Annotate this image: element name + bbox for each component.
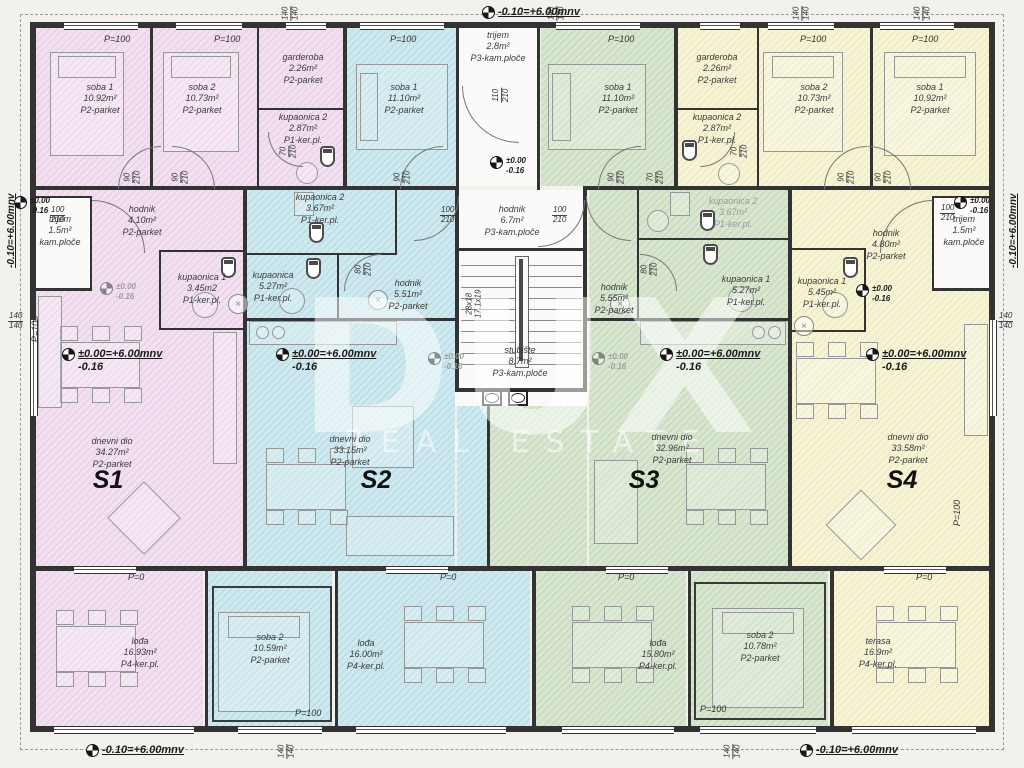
room-label-s4-kupaonica2: kupaonica 22.87m²P1-ker.pl.	[693, 112, 742, 146]
room-label-s3-lodja: lođa15.80m²P4-ker.pl.	[639, 638, 677, 672]
chair-symbol	[860, 404, 878, 419]
room-label-s4-soba1: soba 110.92m²P2-parket	[910, 82, 949, 116]
cabinet-symbol	[213, 332, 237, 464]
level-marker-s1-entry: ±0.00-0.16	[14, 196, 50, 215]
window	[176, 22, 242, 30]
wall	[159, 250, 161, 330]
window	[556, 22, 640, 30]
toilet-symbol	[320, 146, 335, 167]
chair-symbol	[298, 448, 316, 463]
chair-symbol	[796, 342, 814, 357]
column-symbol	[508, 390, 528, 406]
wall	[30, 22, 995, 28]
wall	[830, 570, 834, 726]
wall	[30, 566, 995, 571]
room-label-s4-dnevni: dnevni dio33.58m²P2-parket	[887, 432, 928, 466]
chair-symbol	[718, 448, 736, 463]
level-marker-bottom-left: -0.10=+6.00mnv	[86, 744, 184, 757]
apartment-label-s3: S3	[629, 466, 660, 495]
dim-80-210: 80210	[640, 263, 659, 276]
column-symbol	[482, 390, 502, 406]
sink-symbol	[718, 163, 740, 185]
room-label-s2-soba1: soba 111.10m²P2-parket	[384, 82, 423, 116]
wall	[487, 392, 490, 570]
chair-symbol	[60, 326, 78, 341]
chair-symbol	[120, 610, 138, 625]
room-label-s1-kupaonica2: kupaonica 22.87m²P1-ker.pl.	[279, 112, 328, 146]
wall	[757, 28, 759, 188]
window	[54, 726, 194, 734]
dim-90-210: 90210	[171, 171, 190, 184]
window	[852, 726, 976, 734]
room-label-s2-kupaonica2: kupaonica 23.67m²P1-ker.pl.	[296, 192, 345, 226]
window	[700, 726, 816, 734]
balcony-door	[386, 566, 448, 574]
toilet-symbol	[306, 258, 321, 279]
dim-70-210: 70210	[279, 145, 298, 158]
parapet-label: P=100	[952, 500, 962, 526]
chair-symbol	[124, 326, 142, 341]
kitchen-counter	[38, 296, 62, 408]
wall	[455, 248, 587, 251]
wall	[337, 255, 339, 318]
apartment-label-s4: S4	[887, 466, 918, 495]
wall	[532, 570, 536, 726]
chair-symbol	[572, 668, 590, 683]
parapet-label: P=100	[104, 34, 130, 44]
room-label-s1-soba1: soba 110.92m²P2-parket	[80, 82, 119, 116]
room-label-s1-garderoba: garderoba2.26m²P2-parket	[282, 52, 323, 86]
parapet-label: P=100	[700, 704, 726, 714]
sink-symbol	[647, 210, 669, 232]
wall	[30, 288, 92, 291]
room-label-s1-lodja: lođa16.93m²P4-ker.pl.	[121, 636, 159, 670]
wall	[676, 108, 757, 110]
toilet-symbol	[843, 257, 858, 278]
level-marker-faint: ±0.00-0.16	[100, 282, 136, 301]
room-label-s2-hodnik: hodnik5.51m²P2-parket	[388, 278, 427, 312]
hob-symbol	[768, 326, 781, 339]
dim-110-210: 110210	[492, 88, 511, 103]
chair-symbol	[124, 388, 142, 403]
fan-symbol: ×	[228, 294, 248, 314]
chair-symbol	[266, 510, 284, 525]
level-marker-s3-living: ±0.00=+6.00mnv-0.16	[660, 348, 760, 374]
parapet-label: P=100	[800, 34, 826, 44]
wall	[243, 186, 247, 570]
level-marker-s2-living: ±0.00=+6.00mnv-0.16	[276, 348, 376, 374]
room-fill-s3-ext	[490, 392, 587, 566]
dim-90-210: 90210	[123, 171, 142, 184]
chair-symbol	[940, 606, 958, 621]
chair-symbol	[468, 606, 486, 621]
wall	[456, 22, 459, 190]
window	[880, 22, 954, 30]
room-label-s1-dnevni: dnevni dio34.27m²P2-parket	[91, 436, 132, 470]
room-label-common-stubiste: stubište8.7m²P3-kam.ploče	[492, 345, 547, 379]
chair-symbol	[940, 668, 958, 683]
balcony-door	[74, 566, 136, 574]
parapet-label: P=100	[912, 34, 938, 44]
toilet-symbol	[703, 244, 718, 265]
chair-symbol	[828, 404, 846, 419]
apartment-label-s2: S2	[361, 466, 392, 495]
wall	[537, 22, 540, 190]
sofa-symbol	[346, 516, 454, 556]
dim-90-210: 90210	[874, 171, 893, 184]
chair-symbol	[56, 610, 74, 625]
dim-90-210: 90210	[607, 171, 626, 184]
hob-symbol	[256, 326, 269, 339]
level-marker-faint: ±0.00-0.16	[428, 352, 464, 371]
window	[360, 22, 444, 30]
wall	[637, 190, 639, 318]
chair-symbol	[92, 388, 110, 403]
room-label-s3-dnevni: dnevni dio32.96m²P2-parket	[651, 432, 692, 466]
window	[356, 726, 506, 734]
level-marker-top: -0.10=+6.00mnv	[482, 6, 580, 19]
room-label-s2-lodja: lođa16.00m²P4-ker.pl.	[347, 638, 385, 672]
room-label-common-hodnik: hodnik6.7m²P3-kam.ploče	[484, 204, 539, 238]
level-marker-common: ±0.00-0.16	[490, 156, 526, 175]
wall	[674, 22, 678, 188]
window	[286, 22, 326, 30]
dim-80-210: 80210	[354, 263, 373, 276]
room-label-s4-terasa: terasa16.9m²P4-ker.pl.	[859, 636, 897, 670]
room-label-s3-hodnik: hodnik5.55m²P2-parket	[594, 282, 633, 316]
chair-symbol	[604, 606, 622, 621]
room-label-s4-hodnik: hodnik4.80m²P2-parket	[866, 228, 905, 262]
level-marker-s4-hodnik: ±0.00-0.16	[856, 284, 892, 303]
chair-symbol	[436, 606, 454, 621]
chair-symbol	[404, 606, 422, 621]
dim-140-140: 140140	[8, 312, 23, 331]
room-label-s4-kupaonica1: kupaonica 15.45m²P1-ker.pl.	[798, 276, 847, 310]
dim-90-210: 90210	[393, 171, 412, 184]
room-label-s3-kupaonica2: kupaonica 23.67m²P1-ker.pl.	[709, 196, 758, 230]
balcony-door	[606, 566, 668, 574]
wall	[688, 570, 691, 726]
room-label-s3-kupaonica1: kupaonica 15.27m²P1-ker.pl.	[722, 274, 771, 308]
dim-140-140: 140140	[792, 6, 811, 21]
chair-symbol	[750, 510, 768, 525]
dim-140-140: 140140	[998, 312, 1013, 331]
wall	[343, 22, 347, 188]
window	[562, 726, 674, 734]
chair-symbol	[60, 388, 78, 403]
chair-symbol	[828, 342, 846, 357]
room-label-s4-garderoba: garderoba2.26m²P2-parket	[696, 52, 737, 86]
parapet-label: P=100	[214, 34, 240, 44]
parapet-label: P=100	[30, 316, 40, 342]
room-label-s1-hodnik: hodnik4.10m²P2-parket	[122, 204, 161, 238]
dim-70-210: 70210	[646, 171, 665, 184]
room-label-s2-kupaonica: kupaonica5.27m²P1-ker.pl.	[252, 270, 293, 304]
chair-symbol	[572, 606, 590, 621]
table-symbol	[404, 622, 484, 668]
chair-symbol	[750, 448, 768, 463]
parapet-label: P=100	[608, 34, 634, 44]
chair-symbol	[298, 510, 316, 525]
chair-symbol	[120, 672, 138, 687]
room-label-s3-soba1: soba 111.10m²P2-parket	[598, 82, 637, 116]
chair-symbol	[636, 606, 654, 621]
parapet-label: P=100	[390, 34, 416, 44]
room-label-s1-kupaonica1: kupaonica 13.45m2P1-ker.pl.	[178, 272, 227, 306]
fan-symbol: ×	[368, 290, 388, 310]
parapet-label: P=0	[916, 572, 932, 582]
room-label-s2-soba2: soba 210.59m²P2-parket	[250, 632, 289, 666]
table-symbol	[686, 464, 766, 510]
dim-100-210: 100210	[440, 206, 455, 225]
chair-symbol	[686, 510, 704, 525]
table-symbol	[796, 358, 876, 404]
floor-plan-canvas: × × × × DUX REAL ESTATE soba 110.92m²P2-…	[0, 0, 1024, 768]
wall	[159, 250, 245, 252]
level-marker-s4-living: ±0.00=+6.00mnv-0.16	[866, 348, 966, 374]
chair-symbol	[908, 606, 926, 621]
chair-symbol	[718, 510, 736, 525]
wall	[932, 288, 994, 291]
chair-symbol	[88, 610, 106, 625]
apartment-label-s1: S1	[93, 466, 124, 495]
hob-symbol	[272, 326, 285, 339]
level-marker-s1-living: ±0.00=+6.00mnv-0.16	[62, 348, 162, 374]
parapet-label: P=0	[440, 572, 456, 582]
washer-symbol	[670, 192, 690, 216]
window	[700, 22, 740, 30]
window	[768, 22, 834, 30]
chair-symbol	[876, 668, 894, 683]
chair-symbol	[88, 672, 106, 687]
room-label-s2-dnevni: dnevni dio33.15m²P2-parket	[329, 434, 370, 468]
chair-symbol	[876, 606, 894, 621]
level-marker-right-edge: -0.10=+6.00mnv	[1008, 194, 1019, 269]
dim-140-140: 140140	[277, 744, 296, 759]
chair-symbol	[908, 668, 926, 683]
level-marker-bottom-right: -0.10=+6.00mnv	[800, 744, 898, 757]
dim-140-140: 140140	[281, 6, 300, 21]
room-fill-s2-ext	[457, 392, 487, 566]
parapet-label: P=0	[618, 572, 634, 582]
window	[989, 320, 997, 416]
fan-symbol: ×	[794, 316, 814, 336]
dim-100-210: 100210	[552, 206, 567, 225]
wall	[637, 238, 790, 240]
room-label-s3-soba2: soba 210.78m²P2-parket	[740, 630, 779, 664]
chair-symbol	[404, 668, 422, 683]
wall	[395, 190, 397, 255]
chair-symbol	[796, 404, 814, 419]
chair-symbol	[468, 668, 486, 683]
chair-symbol	[604, 668, 622, 683]
balcony-door	[884, 566, 946, 574]
dim-90-210: 90210	[837, 171, 856, 184]
hob-symbol	[752, 326, 765, 339]
wall	[159, 328, 245, 330]
room-label-common-trijem: trijem2.8m²P3-kam.ploče	[470, 30, 525, 64]
chair-symbol	[92, 326, 110, 341]
room-label-s1-soba2: soba 210.73m²P2-parket	[182, 82, 221, 116]
window	[238, 726, 322, 734]
wall	[205, 570, 208, 726]
level-marker-s4-entry: ±0.00-0.16	[954, 196, 990, 215]
dim-140-140: 140140	[723, 744, 742, 759]
table-symbol	[266, 464, 346, 510]
stair-dimension: 28x1817.1x19	[465, 290, 483, 318]
wall	[259, 108, 343, 110]
parapet-label: P=0	[128, 572, 144, 582]
chair-symbol	[56, 672, 74, 687]
dim-140-140: 140140	[913, 6, 932, 21]
level-marker-faint: ±0.00-0.16	[592, 352, 628, 371]
dining-set	[396, 606, 492, 682]
wall	[790, 248, 866, 250]
wall	[583, 186, 587, 392]
dim-100-210: 100210	[50, 206, 65, 225]
window	[64, 22, 138, 30]
wall	[335, 570, 338, 726]
room-label-s4-soba2: soba 210.73m²P2-parket	[794, 82, 833, 116]
chair-symbol	[436, 668, 454, 683]
kitchen-counter	[964, 324, 988, 436]
chair-symbol	[266, 448, 284, 463]
dim-70-210: 70210	[730, 145, 749, 158]
parapet-label: P=100	[295, 708, 321, 718]
